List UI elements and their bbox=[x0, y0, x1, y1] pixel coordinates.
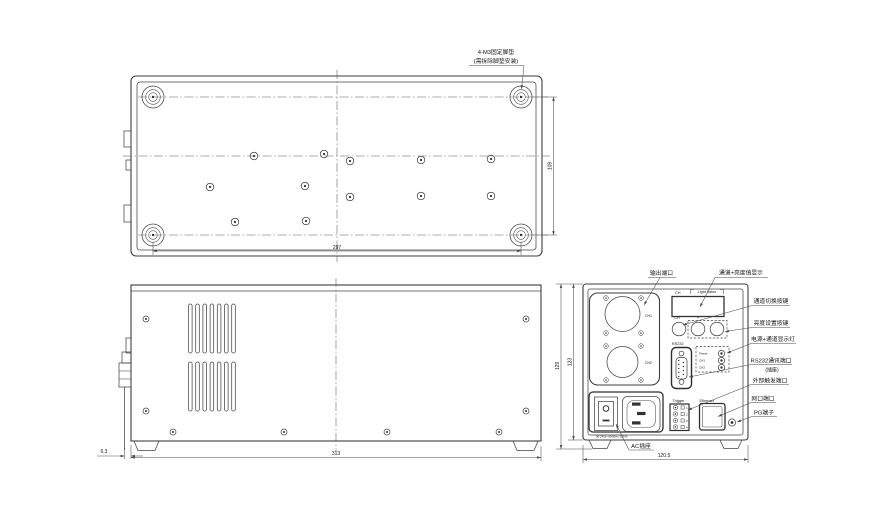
trigger-pin4: 4 bbox=[686, 426, 688, 430]
foot-note-line2: (需拆除脚垫安装) bbox=[474, 57, 519, 65]
pg-terminal bbox=[728, 419, 735, 426]
callout-labels: 输出端口 通道+亮度值显示 通道切换按键 亮度设置按键 电源+通道显示灯 RS2… bbox=[616, 269, 796, 451]
output-panel: CH1 CH2 bbox=[590, 293, 660, 385]
power-switch bbox=[595, 397, 618, 431]
svg-text:电源+通道显示灯: 电源+通道显示灯 bbox=[751, 335, 795, 343]
svg-text:亮度设置按键: 亮度设置按键 bbox=[754, 319, 789, 327]
callout-output-port: 输出端口 bbox=[644, 269, 676, 305]
svg-text:PG端子: PG端子 bbox=[754, 409, 774, 417]
drawing-svg: 4-M3固定脚垫 (需拆除脚垫安装) 297 109 bbox=[0, 0, 888, 522]
dim-129: 129 bbox=[555, 362, 561, 371]
switch-off-symbol bbox=[603, 406, 609, 412]
dim-123: 123 bbox=[568, 358, 574, 367]
brightness-up-button bbox=[691, 322, 705, 336]
brightness-down-button bbox=[710, 322, 724, 336]
callout-rs232-sub: (插座) bbox=[765, 367, 779, 374]
svg-text:输出端口: 输出端口 bbox=[650, 269, 673, 277]
output-ch1-label: CH1 bbox=[645, 314, 652, 318]
dim-side-width: 313 bbox=[131, 446, 541, 461]
panel-buttons: CH + - bbox=[672, 316, 727, 338]
dim-297: 297 bbox=[333, 245, 342, 251]
top-view: 4-M3固定脚垫 (需拆除脚垫安装) 297 109 bbox=[123, 48, 557, 262]
callout-trigger-port: 外部触发端口 bbox=[688, 377, 789, 411]
callout-power-leds: 电源+通道显示灯 bbox=[727, 335, 796, 353]
output-ch2-hole bbox=[607, 347, 638, 378]
led-indicators: Power CH1 CH2 bbox=[696, 347, 729, 373]
side-view: 6.3 313 bbox=[97, 278, 541, 461]
display-ch-label: CH bbox=[675, 291, 681, 295]
output-panel-screws bbox=[604, 296, 644, 383]
led-ch1-label: CH1 bbox=[699, 359, 705, 363]
svg-text:AC插座: AC插座 bbox=[631, 442, 651, 450]
dim-120-5: 120.5 bbox=[658, 453, 671, 459]
trigger-pin1: 1 bbox=[686, 406, 688, 410]
dim-109: 109 bbox=[548, 162, 554, 171]
trigger-label: Trigger bbox=[673, 399, 686, 403]
output-ch1-hole bbox=[605, 297, 640, 332]
callout-brightness-set: 亮度设置按键 bbox=[725, 319, 790, 332]
foot-annotation: 4-M3固定脚垫 (需拆除脚垫安装) bbox=[469, 48, 524, 89]
dim-side-offset: 6.3 bbox=[97, 445, 143, 459]
led-ch2-label: CH2 bbox=[699, 366, 705, 370]
rear-feet bbox=[589, 440, 742, 449]
screw-holes-top bbox=[206, 150, 495, 226]
trigger-pin3: 3 bbox=[686, 419, 688, 423]
dim-rear-height-inner: 123 bbox=[568, 284, 584, 440]
top-view-side-tabs bbox=[124, 131, 131, 222]
output-ch2-label: CH2 bbox=[645, 361, 652, 365]
rs232-label: RS232 bbox=[672, 342, 684, 346]
rear-view: CH1 CH2 CH Light Value CH + - bbox=[555, 284, 748, 463]
svg-text:RS232通讯端口: RS232通讯端口 bbox=[751, 357, 792, 365]
svg-text:通道切换按键: 通道切换按键 bbox=[754, 297, 789, 305]
led-power-label: Power bbox=[699, 352, 708, 356]
svg-text:通道+亮度值显示: 通道+亮度值显示 bbox=[719, 269, 763, 277]
btn-ch-label: CH bbox=[674, 316, 680, 320]
dim-6-3: 6.3 bbox=[101, 449, 108, 455]
dim-313: 313 bbox=[332, 451, 341, 457]
svg-text:外部触发端口: 外部触发端口 bbox=[753, 377, 788, 385]
channel-button bbox=[672, 322, 686, 336]
foot-note-line1: 4-M3固定脚垫 bbox=[478, 48, 515, 56]
ch1-led bbox=[718, 357, 724, 363]
dim-top-height: 109 bbox=[533, 97, 557, 235]
svg-text:网口端口: 网口端口 bbox=[751, 395, 774, 403]
side-connector-profile bbox=[119, 338, 131, 450]
centerlines bbox=[123, 70, 550, 262]
rs232-connector: RS232 bbox=[672, 342, 692, 389]
iec-socket bbox=[623, 397, 661, 432]
rs232-pins bbox=[678, 360, 684, 377]
display-window: CH Light Value bbox=[672, 290, 724, 317]
power-led bbox=[718, 350, 724, 356]
trigger-pin2: 2 bbox=[686, 413, 688, 417]
engineering-drawing-canvas: 4-M3固定脚垫 (需拆除脚垫安装) 297 109 bbox=[0, 0, 888, 522]
vent-slots bbox=[189, 304, 236, 411]
trigger-terminal: Trigger 1 2 3 4 bbox=[670, 399, 689, 431]
ac-inlet-module: 90-240V~50/60Hz 300VA bbox=[589, 392, 663, 439]
